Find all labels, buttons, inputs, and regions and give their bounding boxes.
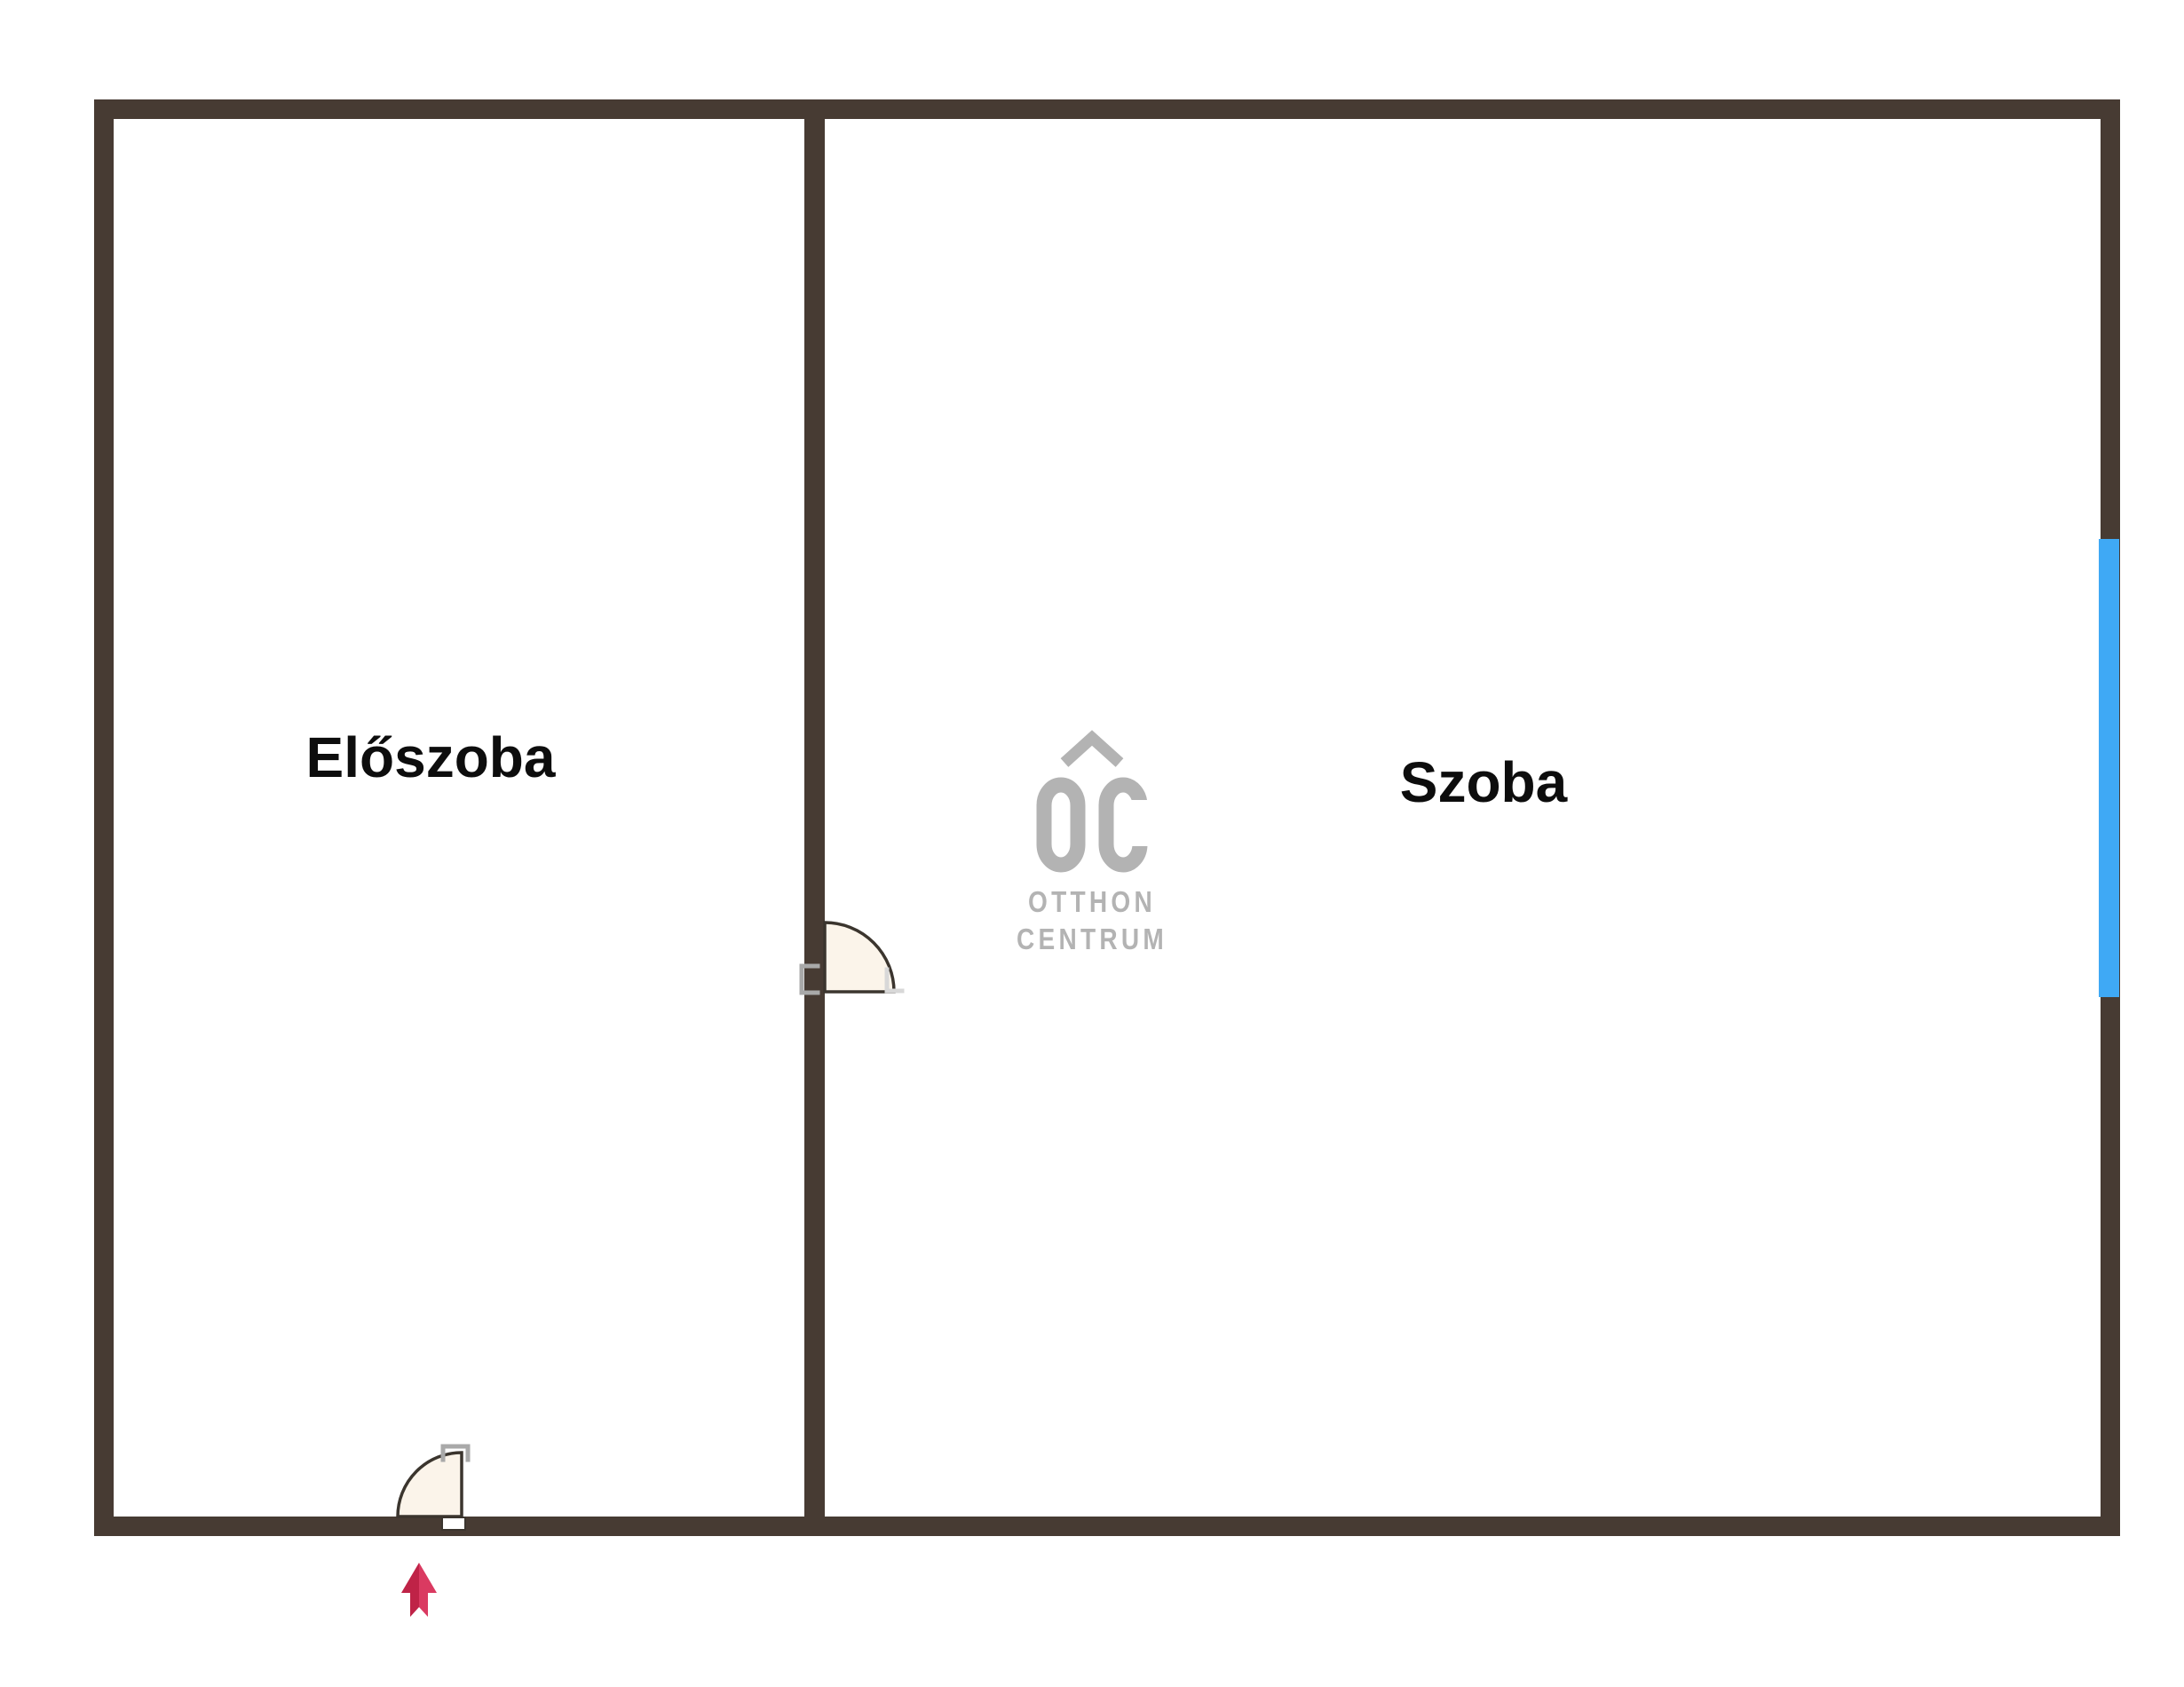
wall-top [94, 99, 2120, 119]
wall-partition [804, 99, 825, 1536]
letter-o-shape [1044, 785, 1078, 865]
entrance-door-swing-icon [398, 1453, 462, 1517]
roof-chevron-icon [1064, 738, 1120, 763]
wall-bottom [94, 1517, 2120, 1536]
letter-c-gap [1128, 800, 1154, 846]
room-label-eloszoba: Előszoba [306, 725, 556, 790]
watermark-line1: OTTHON [1028, 885, 1156, 919]
entrance-arrow-right-half [419, 1563, 437, 1617]
window [2099, 539, 2119, 997]
watermark-logo [1044, 738, 1154, 865]
entrance-arrow-icon [401, 1563, 437, 1617]
floorplan-drawing [0, 0, 2184, 1687]
wall-left [94, 99, 114, 1536]
entrance-threshold [442, 1517, 465, 1530]
room-label-szoba: Szoba [1400, 749, 1567, 815]
interior-door-swing-icon [825, 923, 894, 992]
watermark-line2: CENTRUM [1017, 923, 1167, 956]
entrance-arrow-left-half [401, 1563, 419, 1617]
